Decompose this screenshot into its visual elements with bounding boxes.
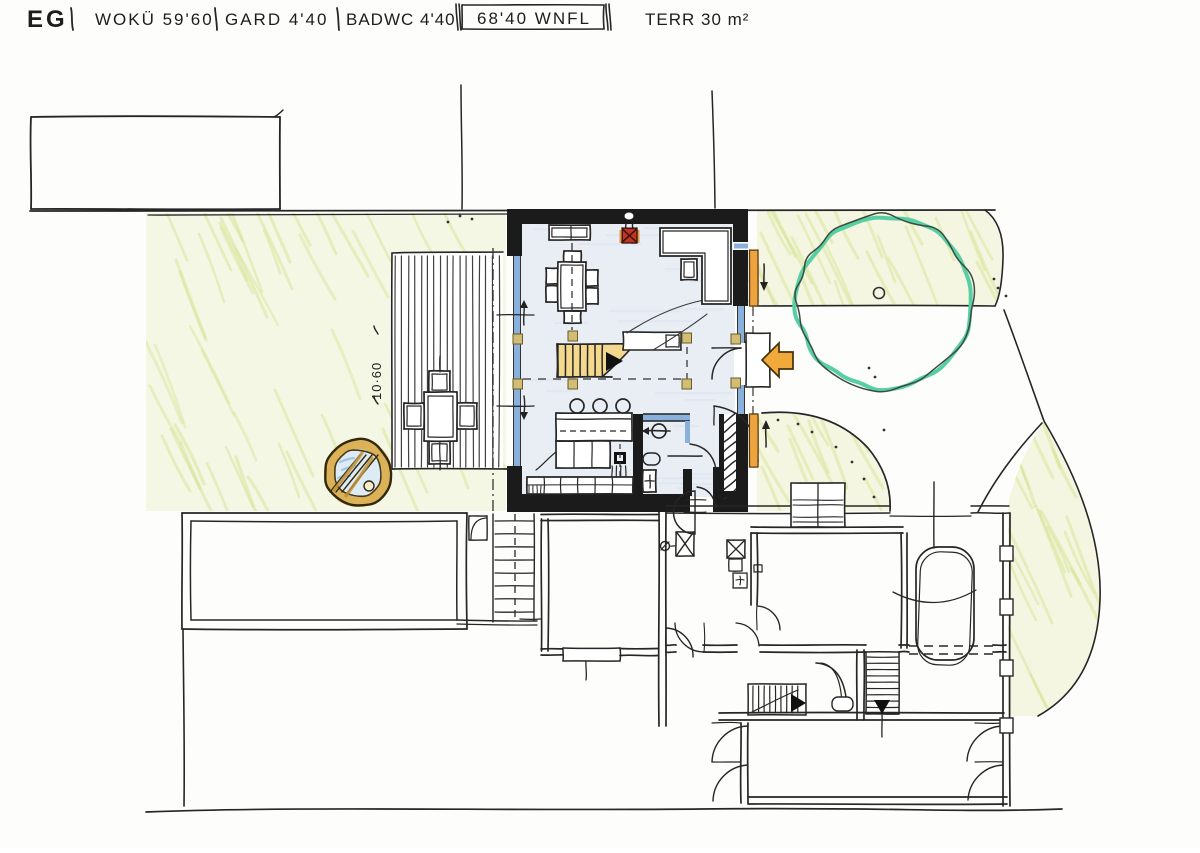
svg-text:GARD 4ʹ40: GARD 4ʹ40 xyxy=(225,10,328,29)
svg-text:BADWC 4ʹ40: BADWC 4ʹ40 xyxy=(346,10,456,29)
svg-text:EG: EG xyxy=(27,6,68,33)
svg-text:TERR 30 m²: TERR 30 m² xyxy=(645,10,749,29)
svg-text:WOKÜ 59ʹ60: WOKÜ 59ʹ60 xyxy=(95,10,214,29)
svg-text:10·60: 10·60 xyxy=(369,362,384,400)
svg-text:68ʹ40 WNFL: 68ʹ40 WNFL xyxy=(477,9,591,28)
